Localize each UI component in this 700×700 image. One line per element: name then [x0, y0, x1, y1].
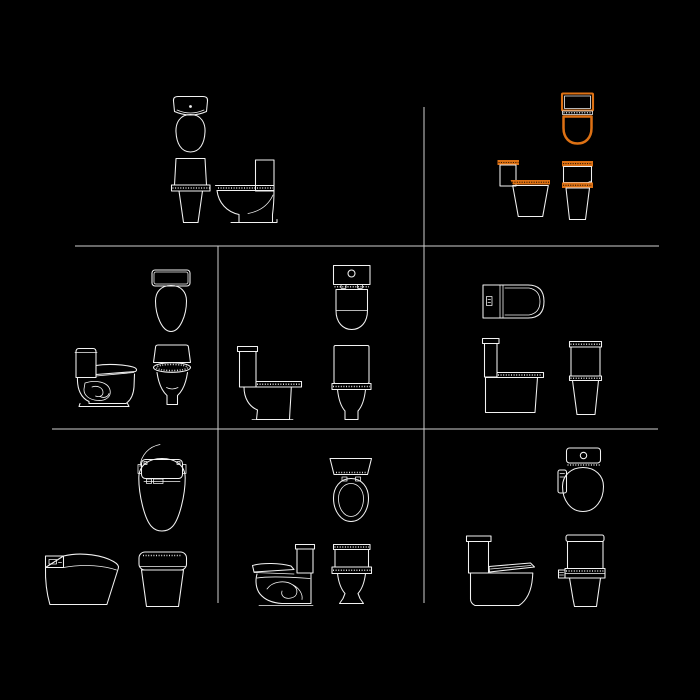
bowl-outline-orange [564, 117, 592, 144]
cad-sheet [0, 0, 700, 700]
trapway-outlet-curve [293, 585, 302, 600]
toilet-plan-view-icon [152, 270, 190, 332]
tank-inner-outline [154, 272, 188, 284]
flush-knob-marks [560, 573, 564, 576]
bowl-outline [156, 286, 187, 332]
pedestal-outline [566, 188, 590, 220]
tank-outline [335, 550, 369, 568]
control-button-marks [488, 300, 491, 303]
toilet-plan-view-icon [334, 266, 371, 330]
toilet-plan-view-icon-highlighted [562, 94, 593, 144]
seat-edge-line [254, 573, 294, 575]
trapway-sculpt-outline [84, 381, 110, 400]
toilet-side-view-icon [216, 160, 278, 223]
tank-outline [297, 549, 313, 573]
tank-lid-outline [567, 448, 601, 463]
trapway-spiral [267, 582, 297, 598]
toilet-front-view-icon [332, 545, 372, 604]
tank-outline [571, 347, 600, 376]
tank-inner-outline [565, 96, 591, 109]
toilet-block-top-right [498, 94, 594, 220]
pedestal-outline [338, 390, 366, 420]
pedestal-outline [570, 578, 601, 607]
toilet-side-view-icon [467, 536, 535, 606]
pedestal-outline [157, 373, 188, 405]
seat-joint-line [64, 565, 117, 570]
lid-outline [336, 290, 368, 330]
tank-outline [469, 542, 489, 574]
toilet-side-view-icon [483, 339, 544, 413]
toilet-front-view-icon [139, 552, 187, 607]
toilet-plan-view-icon [173, 97, 207, 153]
tank-outline [240, 352, 257, 388]
bowl-outline [563, 468, 604, 512]
tank-lid-outline [296, 545, 315, 550]
seat-ring-hatch [157, 365, 188, 371]
seat-inner-outline [505, 288, 540, 315]
toilet-side-view-icon [75, 349, 137, 407]
flush-button [580, 452, 586, 458]
flush-knob [559, 570, 566, 578]
toilet-block-mid-right [483, 285, 602, 415]
toilet-side-view-icon [45, 554, 118, 604]
grid-lines-layer [52, 107, 659, 603]
toilet-side-view-icon [238, 347, 302, 420]
toilet-front-view-icon [570, 342, 602, 415]
toilet-block-bottom-center [253, 459, 372, 606]
tank-lid-inner-arc [177, 110, 204, 113]
pedestal-outline [179, 191, 203, 223]
toilet-block-mid-center [238, 266, 372, 420]
trapway-swirl [92, 386, 103, 396]
toilet-front-view-icon [559, 535, 606, 607]
tank-outline [175, 159, 207, 186]
tank-outline [485, 344, 498, 378]
toilet-block-bottom-right [467, 448, 606, 607]
pedestal-outline [573, 381, 599, 415]
tank-outline [568, 542, 604, 569]
toilet-side-view-icon-highlighted [498, 160, 551, 217]
bowl-outline [471, 573, 533, 606]
control-button [487, 297, 493, 306]
toilet-block-bottom-left [45, 445, 186, 607]
bowl-outline [244, 387, 291, 420]
toilet-plan-view-icon [483, 285, 544, 318]
tank-outline [564, 167, 592, 183]
toilet-plan-view-icon [330, 459, 372, 522]
bowl-outline [139, 459, 185, 532]
tank-outline [256, 160, 275, 191]
bowl-outline [176, 115, 205, 153]
seat-lid-outline [253, 563, 295, 572]
pedestal-outline [338, 574, 366, 604]
tank-lid-outline [483, 339, 500, 344]
tank-outline [154, 345, 191, 363]
cad-drawing-canvas [0, 0, 700, 700]
toilet-front-view-icon [332, 346, 371, 420]
tank-lid-outline [467, 536, 492, 542]
base-line [231, 220, 277, 223]
tank-lid-outline [238, 347, 258, 352]
bowl-outline [513, 186, 549, 217]
bowl-mouth-line [167, 388, 179, 390]
toilet-plan-view-icon [138, 445, 186, 532]
bowl-outline [486, 378, 538, 413]
toilet-front-view-icon-highlighted [562, 161, 593, 220]
trapway-curve [248, 195, 273, 214]
flush-button-dot [189, 105, 192, 108]
toilet-block-top-left [172, 97, 278, 223]
toilet-side-view-icon [253, 545, 315, 606]
toilet-front-view-icon [154, 345, 191, 405]
toilet-front-view-icon [172, 159, 211, 223]
toilet-block-mid-left [75, 270, 191, 407]
bowl-underside-line [257, 577, 310, 579]
body-outline [142, 570, 184, 607]
bowl-outline [217, 191, 274, 223]
bowl-inner-outline [339, 484, 364, 517]
tank-lid-outline [334, 545, 371, 550]
tank-lid-outline [566, 535, 604, 542]
control-panel-marks [560, 474, 565, 478]
tank-outline [334, 266, 371, 285]
lid-outline [139, 552, 187, 570]
tank-outline [334, 346, 369, 384]
flush-button [348, 270, 355, 277]
toilet-plan-view-icon [558, 448, 604, 512]
lid-swing-arc [140, 445, 160, 467]
